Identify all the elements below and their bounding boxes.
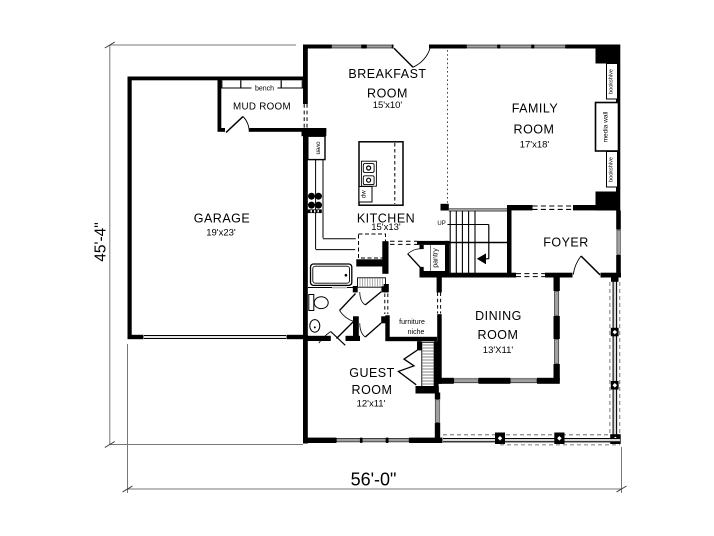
svg-text:bookshlve: bookshlve [609, 69, 615, 94]
svg-text:ROOM: ROOM [367, 87, 408, 101]
svg-text:19'x23': 19'x23' [206, 228, 236, 239]
svg-text:dw: dw [362, 190, 368, 198]
svg-text:DINING: DINING [475, 309, 522, 323]
svg-text:13'X11': 13'X11' [483, 345, 514, 356]
svg-text:56'-0": 56'-0" [351, 470, 397, 490]
svg-text:FAMILY: FAMILY [512, 102, 559, 116]
svg-text:17'x18': 17'x18' [520, 140, 550, 151]
svg-text:GUEST: GUEST [349, 366, 395, 380]
svg-text:ROOM: ROOM [478, 328, 519, 342]
svg-text:niche: niche [408, 329, 425, 336]
svg-text:UP: UP [437, 221, 445, 227]
svg-text:15'x13': 15'x13' [371, 222, 401, 233]
svg-text:BREAKFAST: BREAKFAST [348, 67, 426, 81]
svg-text:MUD ROOM: MUD ROOM [233, 102, 291, 113]
svg-text:FOYER: FOYER [543, 236, 589, 250]
svg-text:45'-4": 45'-4" [93, 222, 110, 261]
svg-text:pantry: pantry [433, 248, 440, 268]
svg-text:bench: bench [255, 85, 274, 92]
svg-text:furniture: furniture [399, 319, 425, 326]
svg-text:bookshlve: bookshlve [609, 157, 615, 182]
svg-text:15'x10': 15'x10' [373, 100, 403, 111]
svg-text:oven: oven [315, 141, 321, 154]
svg-text:GARAGE: GARAGE [194, 212, 251, 226]
svg-text:media wall: media wall [603, 111, 610, 142]
svg-text:12'x11': 12'x11' [357, 399, 386, 410]
svg-text:ROOM: ROOM [352, 383, 393, 397]
svg-text:ROOM: ROOM [514, 123, 555, 137]
